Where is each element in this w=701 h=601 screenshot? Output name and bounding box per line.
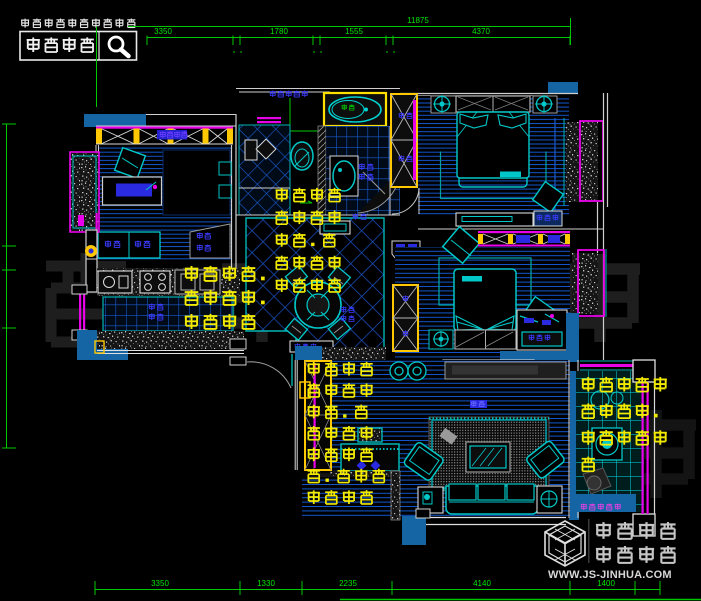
svg-text:3350: 3350	[151, 579, 169, 588]
svg-text:WWW.JS-JINHUA.COM: WWW.JS-JINHUA.COM	[548, 569, 672, 581]
svg-text:1330: 1330	[257, 579, 275, 588]
svg-text:4370: 4370	[472, 27, 490, 36]
svg-text:3350: 3350	[154, 27, 172, 36]
svg-text:1555: 1555	[345, 27, 363, 36]
svg-text:1780: 1780	[270, 27, 288, 36]
svg-text:2235: 2235	[339, 579, 357, 588]
svg-text:4140: 4140	[473, 579, 491, 588]
svg-text:11875: 11875	[407, 16, 429, 25]
